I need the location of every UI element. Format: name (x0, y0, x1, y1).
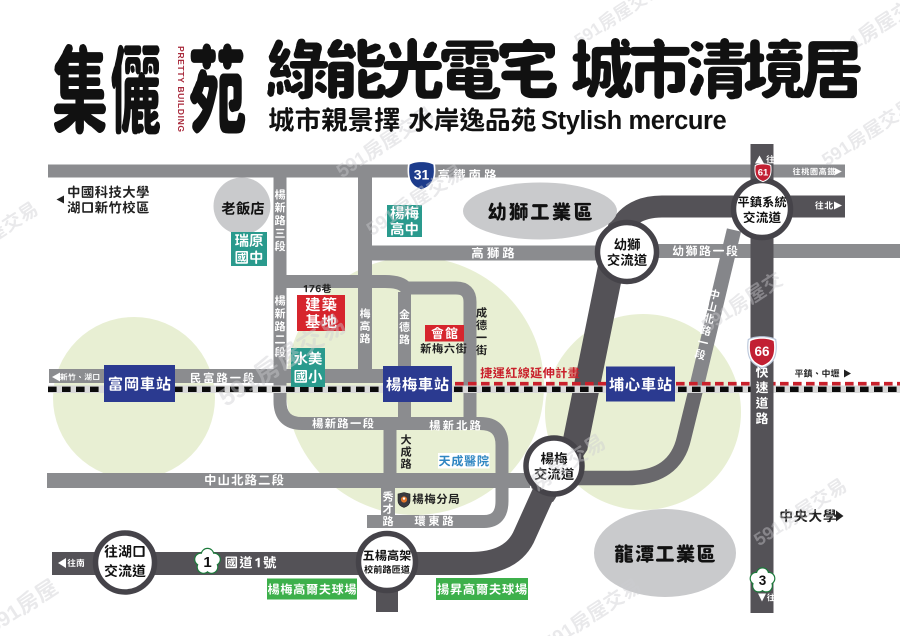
svg-text:61: 61 (758, 167, 769, 178)
svg-text:3: 3 (759, 573, 767, 588)
svg-text:31: 31 (414, 167, 430, 183)
svg-text:PRETTY BUILDING: PRETTY BUILDING (176, 46, 186, 133)
svg-text:1: 1 (203, 554, 211, 571)
svg-text:Stylish mercure: Stylish mercure (541, 107, 727, 135)
svg-text:66: 66 (754, 344, 770, 359)
